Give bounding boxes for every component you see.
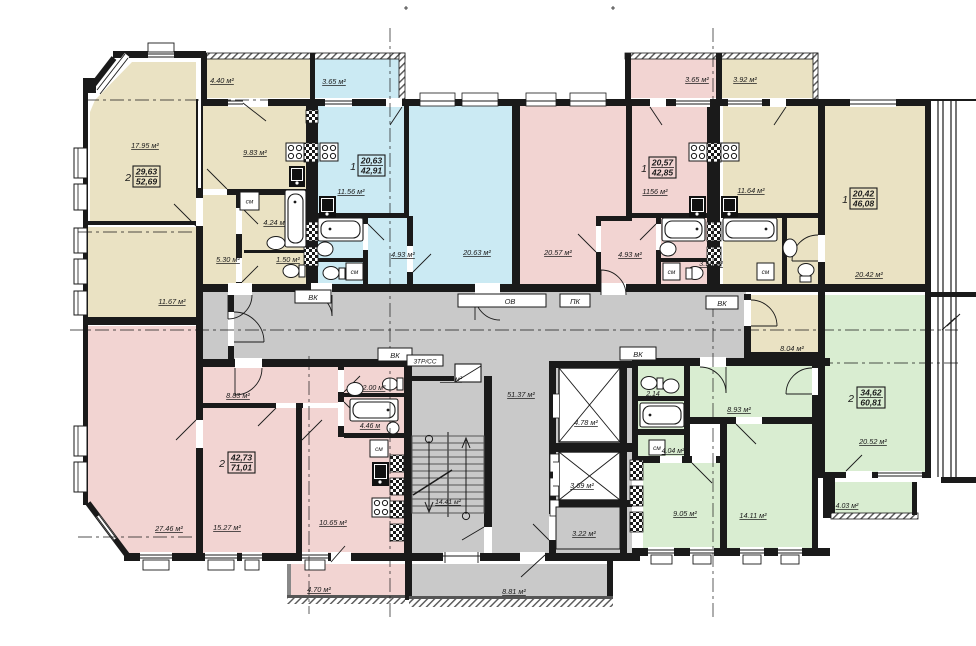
svg-text:1: 1 — [350, 161, 356, 173]
svg-text:34,62: 34,62 — [860, 388, 882, 398]
svg-text:см: см — [246, 199, 254, 206]
svg-text:60,81: 60,81 — [860, 398, 882, 408]
svg-text:15.27 м²: 15.27 м² — [213, 523, 241, 532]
svg-text:ВК: ВК — [717, 299, 727, 308]
svg-text:14.41 м²: 14.41 м² — [435, 499, 462, 506]
svg-text:4.40 м²: 4.40 м² — [210, 76, 234, 85]
svg-text:11.56 м²: 11.56 м² — [337, 187, 365, 196]
svg-text:1156 м²: 1156 м² — [642, 187, 668, 196]
svg-text:2: 2 — [218, 458, 225, 470]
svg-text:9.83 м²: 9.83 м² — [243, 148, 267, 157]
svg-text:8.93 м²: 8.93 м² — [727, 405, 751, 414]
svg-text:20.52 м²: 20.52 м² — [858, 437, 887, 446]
svg-text:42,91: 42,91 — [360, 166, 383, 176]
svg-text:4.78 м²: 4.78 м² — [574, 418, 598, 427]
svg-text:4.03 м²: 4.03 м² — [836, 503, 859, 510]
svg-text:3ТР/СС: 3ТР/СС — [413, 359, 436, 366]
svg-text:8.81 м²: 8.81 м² — [502, 587, 526, 596]
svg-text:9.05 м²: 9.05 м² — [673, 509, 697, 518]
svg-text:20.42 м²: 20.42 м² — [854, 270, 883, 279]
svg-text:0.86 м²: 0.86 м² — [440, 376, 463, 383]
svg-text:27.46 м²: 27.46 м² — [154, 524, 183, 533]
svg-text:46,08: 46,08 — [852, 199, 875, 209]
svg-text:ВК: ВК — [308, 293, 318, 302]
svg-text:2: 2 — [847, 393, 854, 405]
svg-text:3.65 м²: 3.65 м² — [322, 77, 346, 86]
svg-text:ПК: ПК — [570, 297, 580, 306]
svg-text:4.70 м²: 4.70 м² — [307, 585, 331, 594]
svg-text:ОВ: ОВ — [505, 297, 516, 306]
svg-text:51.37 м²: 51.37 м² — [507, 390, 535, 399]
svg-text:10.65 м²: 10.65 м² — [319, 518, 347, 527]
svg-text:см: см — [375, 446, 383, 453]
svg-text:42,85: 42,85 — [651, 168, 674, 178]
svg-text:52,69: 52,69 — [136, 177, 158, 187]
svg-text:14.11 м²: 14.11 м² — [739, 511, 767, 520]
svg-text:5.30 м²: 5.30 м² — [216, 255, 240, 264]
svg-text:20.63 м²: 20.63 м² — [462, 248, 491, 257]
svg-text:1.50 м²: 1.50 м² — [276, 255, 300, 264]
svg-text:8.83 м²: 8.83 м² — [226, 391, 250, 400]
svg-text:29,63: 29,63 — [135, 167, 158, 177]
svg-text:4.24 м: 4.24 м — [263, 218, 284, 227]
svg-text:2.00 м²: 2.00 м² — [362, 385, 386, 392]
svg-text:2.14: 2.14 — [645, 391, 660, 398]
svg-text:17.95 м²: 17.95 м² — [131, 141, 159, 150]
svg-text:см: см — [653, 445, 661, 452]
svg-text:ВК: ВК — [390, 351, 400, 360]
svg-text:4.04 м²: 4.04 м² — [662, 448, 685, 455]
svg-text:20,57: 20,57 — [651, 158, 675, 168]
svg-text:11.64 м²: 11.64 м² — [737, 186, 765, 195]
svg-text:20,63: 20,63 — [360, 156, 383, 166]
svg-text:8.04 м²: 8.04 м² — [780, 344, 804, 353]
svg-text:см: см — [668, 269, 676, 276]
svg-text:20.57 м²: 20.57 м² — [543, 248, 572, 257]
svg-text:3.92 м²: 3.92 м² — [733, 75, 757, 84]
svg-text:71,01: 71,01 — [231, 463, 253, 473]
svg-text:3.69 м²: 3.69 м² — [570, 481, 594, 490]
svg-text:1: 1 — [641, 163, 647, 175]
svg-text:см: см — [351, 269, 359, 276]
svg-text:11.67 м²: 11.67 м² — [158, 297, 186, 306]
svg-text:3.65 м²: 3.65 м² — [685, 75, 709, 84]
svg-text:42,73: 42,73 — [230, 453, 253, 463]
svg-text:3.96 м²: 3.96 м² — [699, 259, 723, 268]
svg-text:4.93 м²: 4.93 м² — [391, 250, 415, 259]
svg-text:1: 1 — [842, 194, 848, 206]
svg-text:2: 2 — [124, 172, 131, 184]
svg-text:ВК: ВК — [633, 350, 643, 359]
svg-text:4.93 м²: 4.93 м² — [618, 250, 642, 259]
svg-text:20,42: 20,42 — [852, 189, 875, 199]
svg-text:4.46 м: 4.46 м — [360, 423, 381, 430]
svg-text:3.22 м²: 3.22 м² — [572, 529, 596, 538]
svg-text:см: см — [762, 269, 770, 276]
